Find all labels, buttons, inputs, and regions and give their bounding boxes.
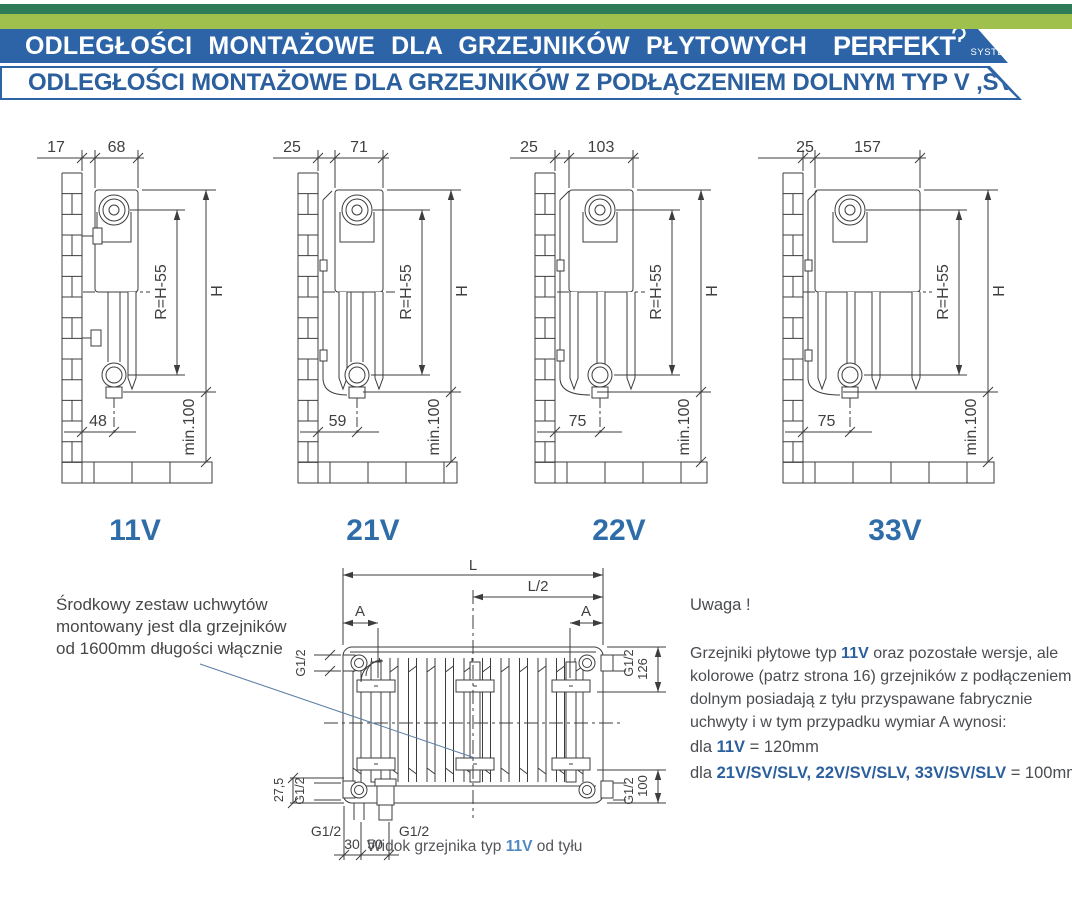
type-highlight: 11V bbox=[506, 838, 533, 855]
subtitle-banner-border: ODLEGŁOŚCI MONTAŻOWE DLA GRZEJNIKÓW Z PO… bbox=[0, 66, 1072, 100]
bracket-a-dim: A bbox=[355, 603, 365, 620]
warning-note: Uwaga ! Grzejniki płytowe typ 11V oraz p… bbox=[690, 596, 1072, 786]
bottom-offset-dim: 48 bbox=[89, 413, 107, 430]
thread-dim: G1/2 bbox=[293, 777, 307, 804]
thread-dim: G1/2 bbox=[622, 649, 636, 676]
min-floor-dim: min.100 bbox=[426, 398, 443, 455]
depth-dim: 103 bbox=[588, 139, 615, 156]
page: ODLEGŁOŚCI MONTAŻOWE DLA GRZEJNIKÓW PŁYT… bbox=[0, 0, 1072, 898]
text-segment: Grzejniki płytowe typ bbox=[690, 645, 841, 662]
text-segment: = 100mm bbox=[1006, 764, 1072, 782]
radius-dim: R=H-55 bbox=[153, 264, 170, 320]
wall-gap-dim: 25 bbox=[796, 139, 814, 156]
radius-dim: R=H-55 bbox=[935, 264, 952, 320]
warning-rule: dla 11V = 120mm bbox=[690, 734, 1072, 760]
height-dim: H bbox=[991, 285, 1008, 297]
depth-dim: 68 bbox=[108, 139, 126, 156]
warning-rule: dla 21V/SV/SLV, 22V/SV/SLV, 33V/SV/SLV =… bbox=[690, 760, 1072, 786]
type-label: 21V bbox=[346, 514, 399, 547]
text-segment: uchwyty i w tym przypadku wymiar A wynos… bbox=[690, 714, 1007, 731]
thread-dim: G1/2 bbox=[399, 823, 430, 839]
side-diagram-21V: 2571R=H-55Hmin.1005921V bbox=[273, 139, 471, 547]
min-floor-dim: min.100 bbox=[181, 398, 198, 455]
text-segment: = 120mm bbox=[745, 738, 819, 756]
radius-dim: R=H-55 bbox=[648, 264, 665, 320]
wall-gap-dim: 17 bbox=[47, 139, 65, 156]
subtitle: ODLEGŁOŚCI MONTAŻOWE DLA GRZEJNIKÓW Z PO… bbox=[28, 69, 1071, 97]
rear-view-drawing: LL/2AAG1/2G1/2126G1/210027,5G1/23050G1/2… bbox=[200, 557, 666, 860]
side-diagrams-figure: 1768R=H-55Hmin.1004811V2571R=H-55Hmin.10… bbox=[0, 130, 1072, 560]
warning-paragraph: Grzejniki płytowe typ 11V oraz pozostałe… bbox=[690, 642, 1072, 734]
text-segment: kolorowe (patrz strona 16) grzejników z … bbox=[690, 668, 1072, 685]
warning-line: kolorowe (patrz strona 16) grzejników z … bbox=[690, 665, 1072, 688]
text-segment: od tyłu bbox=[532, 838, 582, 855]
text-segment: dolnym posiadają z tyłu przyspawane fabr… bbox=[690, 691, 1032, 708]
bracket-a-dim: A bbox=[581, 603, 591, 620]
warning-title: Uwaga ! bbox=[690, 596, 1072, 615]
bottom-offset-dim: 75 bbox=[818, 413, 836, 430]
rear-view-caption: Widok grzejnika typ 11V od tyłu bbox=[367, 838, 582, 856]
brand-name: PERFEKT bbox=[833, 31, 956, 62]
depth-dim: 71 bbox=[350, 139, 368, 156]
warning-rules: dla 11V = 120mmdla 21V/SV/SLV, 22V/SV/SL… bbox=[690, 734, 1072, 786]
warning-line: dolnym posiadają z tyłu przyspawane fabr… bbox=[690, 688, 1072, 711]
brand-subname: SYSTEM bbox=[971, 47, 1013, 58]
height-dim: H bbox=[454, 285, 471, 297]
wall-gap-dim: 25 bbox=[283, 139, 301, 156]
thread-dim: G1/2 bbox=[311, 823, 342, 839]
top-bar-dark bbox=[0, 4, 1072, 14]
header-banner: ODLEGŁOŚCI MONTAŻOWE DLA GRZEJNIKÓW PŁYT… bbox=[0, 29, 1072, 63]
type-highlight: 21V/SV/SLV, 22V/SV/SLV, 33V/SV/SLV bbox=[717, 764, 1007, 782]
depth-dim: 157 bbox=[854, 139, 881, 156]
text-segment: oraz pozostałe wersje, ale bbox=[869, 645, 1058, 662]
wall-gap-dim: 25 bbox=[520, 139, 538, 156]
text-segment: dla bbox=[690, 764, 717, 782]
type-label: 33V bbox=[868, 514, 921, 547]
min-floor-dim: min.100 bbox=[676, 398, 693, 455]
warning-line: uchwyty i w tym przypadku wymiar A wynos… bbox=[690, 711, 1072, 734]
type-label: 22V bbox=[592, 514, 645, 547]
thread-dim: G1/2 bbox=[622, 777, 636, 804]
subtitle-banner: ODLEGŁOŚCI MONTAŻOWE DLA GRZEJNIKÓW Z PO… bbox=[0, 68, 1068, 98]
type-highlight: 11V bbox=[841, 645, 869, 662]
length-dim: L bbox=[469, 557, 477, 574]
side-diagram-33V: 25157R=H-55Hmin.1007533V bbox=[758, 139, 1008, 547]
half-length-dim: L/2 bbox=[528, 578, 549, 595]
type-label: 11V bbox=[109, 514, 161, 547]
warning-line: Grzejniki płytowe typ 11V oraz pozostałe… bbox=[690, 642, 1072, 665]
side-diagram-22V: 25103R=H-55Hmin.1007522V bbox=[510, 139, 721, 547]
pipe-dim: 30 bbox=[344, 836, 360, 852]
radius-dim: R=H-55 bbox=[398, 264, 415, 320]
brand-logo: PERFEKT SYSTEM bbox=[833, 31, 1013, 62]
type-highlight: 11V bbox=[717, 738, 745, 756]
side-diagram-11V: 1768R=H-55Hmin.1004811V bbox=[37, 139, 226, 547]
height-dim: H bbox=[209, 285, 226, 297]
top-bar-green bbox=[0, 14, 1072, 29]
text-segment: dla bbox=[690, 738, 717, 756]
text-segment: Widok grzejnika typ bbox=[367, 838, 506, 855]
page-title: ODLEGŁOŚCI MONTAŻOWE DLA GRZEJNIKÓW PŁYT… bbox=[25, 32, 807, 61]
bottom-offset-dim: 75 bbox=[569, 413, 587, 430]
height-dim: H bbox=[704, 285, 721, 297]
thread-dim: G1/2 bbox=[294, 649, 308, 676]
bottom-offset-dim: 59 bbox=[329, 413, 347, 430]
min-floor-dim: min.100 bbox=[963, 398, 980, 455]
top-tab-dim: 126 bbox=[635, 658, 650, 680]
bottom-tab-dim: 100 bbox=[635, 775, 650, 797]
corner-dim: 27,5 bbox=[272, 778, 286, 802]
